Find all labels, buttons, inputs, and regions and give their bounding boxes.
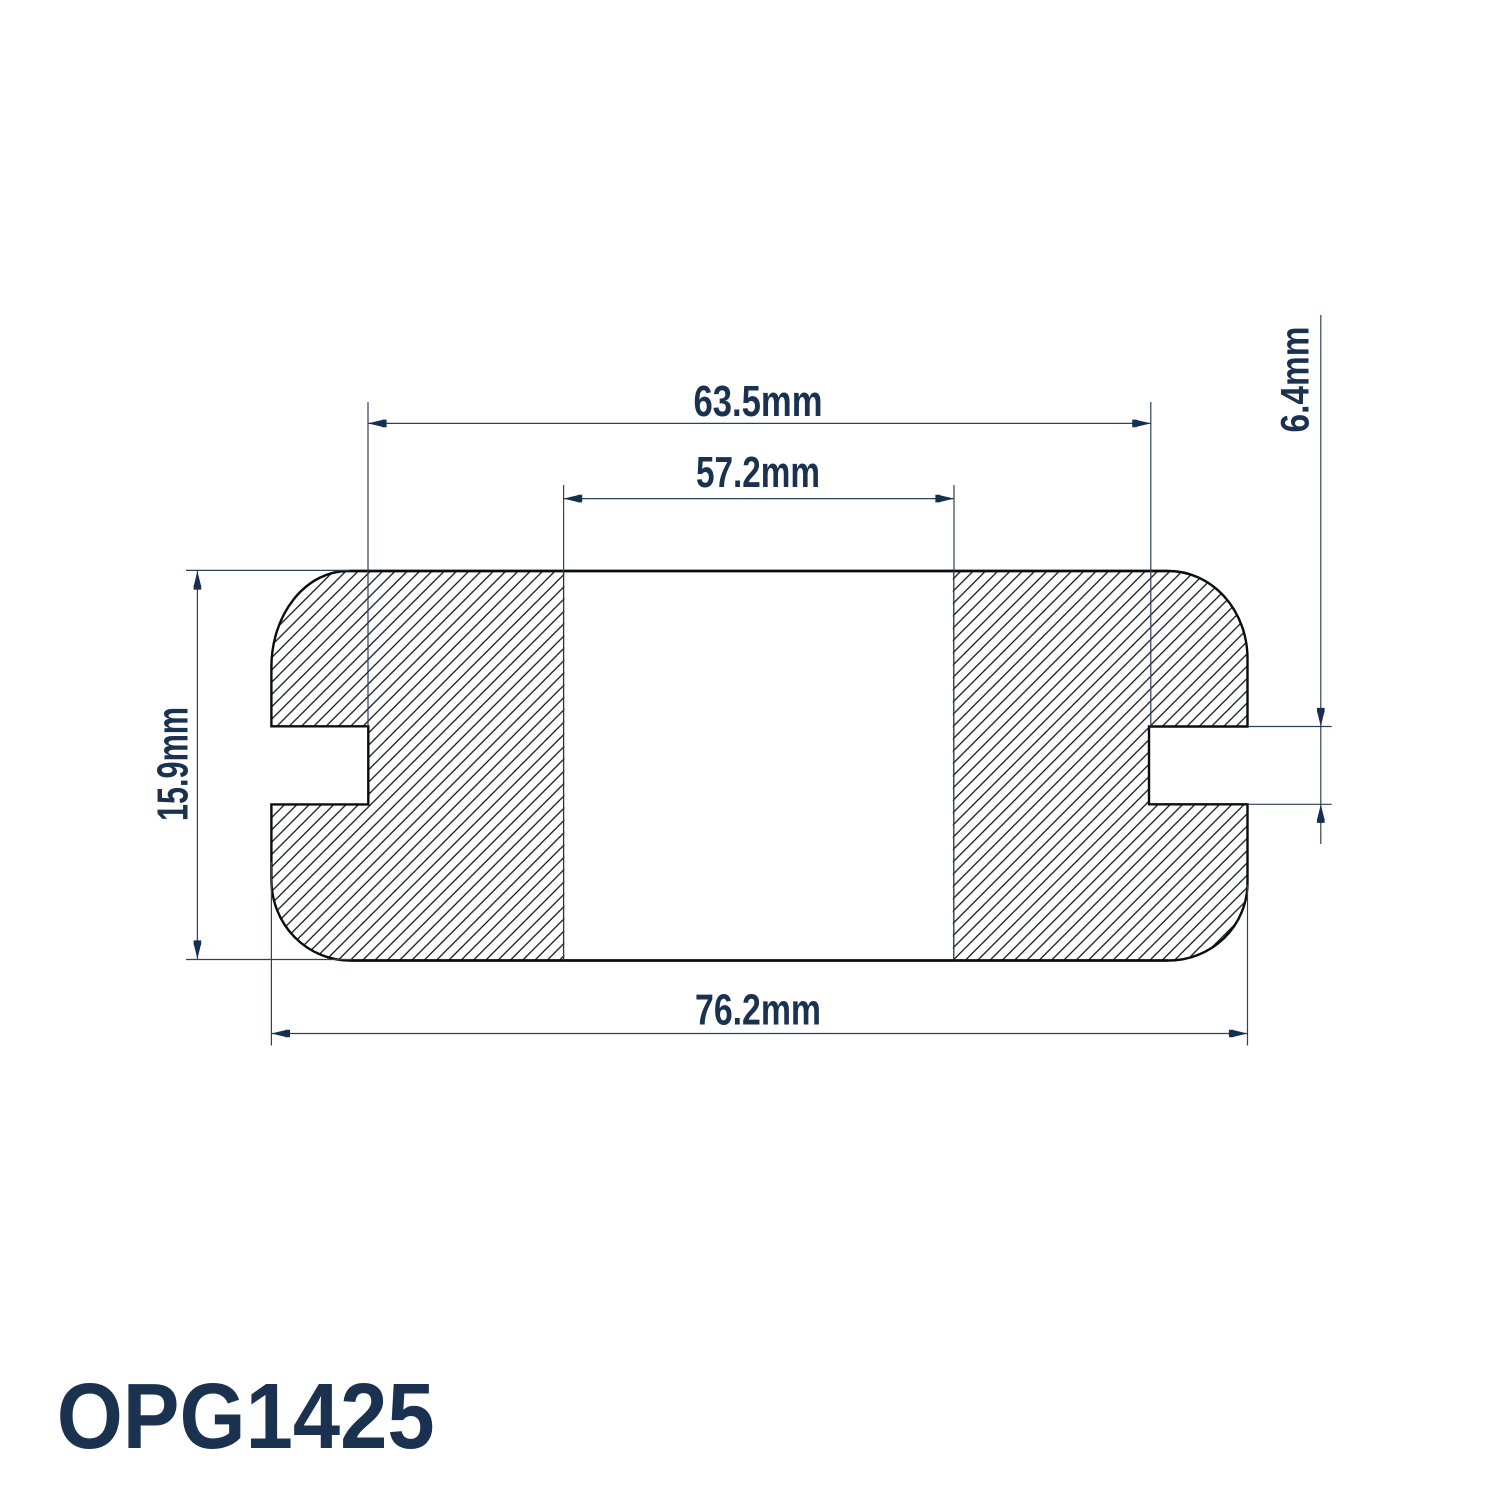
- svg-text:63.5mm: 63.5mm: [694, 377, 823, 426]
- svg-text:15.9mm: 15.9mm: [148, 707, 197, 821]
- svg-text:OPG1425: OPG1425: [57, 1364, 435, 1468]
- svg-text:57.2mm: 57.2mm: [696, 448, 820, 497]
- svg-text:76.2mm: 76.2mm: [695, 986, 821, 1035]
- svg-text:6.4mm: 6.4mm: [1274, 327, 1318, 433]
